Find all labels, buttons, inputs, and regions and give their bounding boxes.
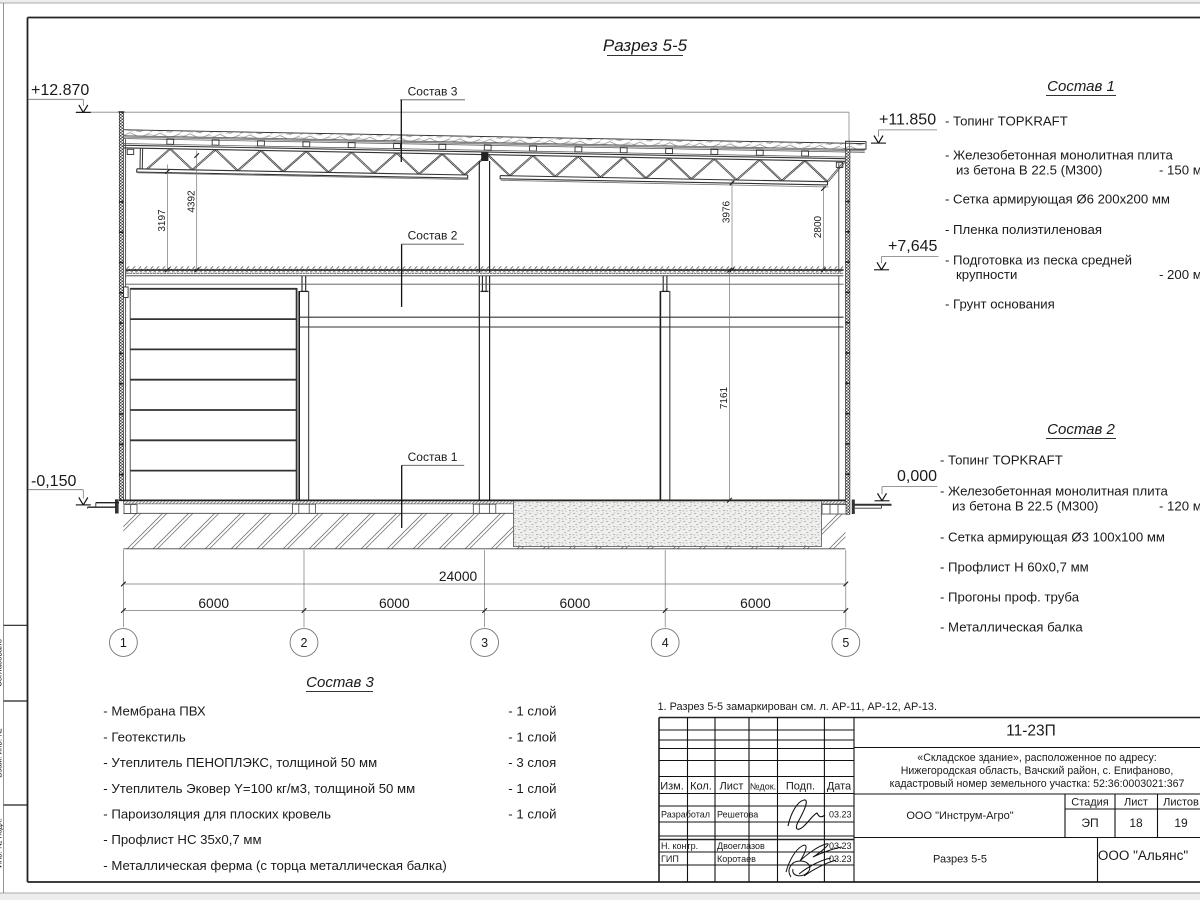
svg-text:Двоеглазов: Двоеглазов [717, 841, 765, 851]
svg-text:18: 18 [1129, 816, 1143, 830]
svg-text:11-23П: 11-23П [1006, 723, 1056, 740]
svg-text:0,000: 0,000 [897, 468, 937, 485]
svg-text:03.23: 03.23 [829, 854, 852, 864]
svg-text:6000: 6000 [740, 596, 771, 611]
svg-text:Подп.: Подп. [786, 781, 815, 793]
svg-text:Решетова: Решетова [717, 810, 758, 820]
svg-text:- Сетка армирующая Ø6 200х200: - Сетка армирующая Ø6 200х200 мм [945, 192, 1170, 207]
svg-text:из бетона В 22.5 (М300): из бетона В 22.5 (М300) [952, 499, 1098, 514]
svg-text:ГИП: ГИП [661, 854, 679, 864]
svg-text:4: 4 [662, 636, 669, 650]
svg-text:Лист: Лист [720, 781, 744, 793]
svg-text:- Сетка армирующая Ø3 100х100: - Сетка армирующая Ø3 100х100 мм [940, 530, 1165, 545]
svg-text:- Металлическая ферма (с торца: - Металлическая ферма (с торца металличе… [103, 858, 446, 873]
svg-text:Кол.: Кол. [690, 781, 712, 793]
svg-text:- Пароизоляция для плоских кро: - Пароизоляция для плоских кровель [103, 807, 331, 822]
svg-text:Стадия: Стадия [1071, 797, 1109, 809]
svg-text:- Подготовка из песка средней: - Подготовка из песка средней [945, 253, 1132, 268]
svg-text:6000: 6000 [379, 596, 410, 611]
svg-text:- Геотекстиль: - Геотекстиль [103, 730, 186, 745]
svg-text:6000: 6000 [560, 596, 591, 611]
svg-text:- Прогоны проф. труба: - Прогоны проф. труба [940, 590, 1080, 605]
svg-text:2: 2 [301, 636, 308, 650]
svg-text:- Грунт основания: - Грунт основания [945, 297, 1055, 312]
svg-text:1. Разрез 5-5 замаркирован см.: 1. Разрез 5-5 замаркирован см. л. АР-11,… [658, 701, 938, 713]
svg-text:- Топинг TOPKRAFT: - Топинг TOPKRAFT [945, 114, 1068, 129]
svg-text:- Топинг TOPKRAFT: - Топинг TOPKRAFT [940, 453, 1063, 468]
svg-text:Состав 2: Состав 2 [1047, 421, 1115, 438]
svg-text:5: 5 [842, 636, 849, 650]
svg-text:4392: 4392 [186, 190, 197, 213]
svg-text:ООО "Инструм-Агро": ООО "Инструм-Агро" [906, 810, 1013, 822]
svg-text:- Профлист НС 35х0,7 мм: - Профлист НС 35х0,7 мм [103, 832, 261, 847]
svg-text:- Утеплитель ПЕНОПЛЭКС, толщин: - Утеплитель ПЕНОПЛЭКС, толщиной 50 мм [103, 755, 377, 770]
svg-text:Взам. инв. №: Взам. инв. № [0, 728, 4, 778]
svg-text:1: 1 [120, 636, 127, 650]
svg-text:Лист: Лист [1124, 797, 1148, 809]
svg-text:- 120 мм: - 120 мм [1159, 499, 1200, 514]
svg-text:ЭП: ЭП [1081, 816, 1098, 830]
svg-text:ООО "Альянс": ООО "Альянс" [1098, 848, 1188, 863]
svg-text:Н. контр.: Н. контр. [661, 841, 698, 851]
svg-text:3197: 3197 [157, 209, 168, 232]
svg-text:- 3 слоя: - 3 слоя [508, 755, 556, 770]
svg-text:2800: 2800 [813, 215, 824, 238]
svg-text:Разработал: Разработал [661, 810, 710, 820]
svg-text:Состав 3: Состав 3 [408, 85, 458, 99]
svg-text:- 1 слой: - 1 слой [508, 807, 556, 822]
svg-text:7161: 7161 [719, 386, 730, 409]
svg-text:- Металлическая балка: - Металлическая балка [940, 620, 1083, 635]
svg-text:- 200 мм: - 200 мм [1159, 267, 1200, 282]
svg-text:Изм.: Изм. [660, 781, 684, 793]
svg-text:Состав 1: Состав 1 [408, 450, 458, 464]
svg-text:Дата: Дата [827, 781, 852, 793]
svg-text:Коротаев: Коротаев [717, 854, 756, 864]
svg-text:кадастровый номер земельного у: кадастровый номер земельного участка: 52… [890, 778, 1185, 790]
svg-text:+12.870: +12.870 [31, 82, 89, 99]
svg-text:- Мембрана ПВХ: - Мембрана ПВХ [103, 704, 206, 719]
svg-text:- Утеплитель Эковер Y=100 кг/м: - Утеплитель Эковер Y=100 кг/м3, толщино… [103, 781, 415, 796]
svg-text:3976: 3976 [722, 200, 733, 223]
svg-text:крупности: крупности [956, 267, 1017, 282]
svg-text:19: 19 [1174, 816, 1188, 830]
svg-text:- 1 слой: - 1 слой [508, 704, 556, 719]
svg-text:3: 3 [481, 636, 488, 650]
svg-text:«Складское здание», расположен: «Складское здание», расположенное по адр… [917, 752, 1156, 764]
svg-text:24000: 24000 [439, 569, 478, 584]
svg-text:Состав 1: Состав 1 [1047, 78, 1115, 95]
svg-text:Согласовано: Согласовано [0, 638, 4, 687]
svg-text:Состав 2: Состав 2 [408, 229, 458, 243]
svg-text:- Железобетонная монолитная п: - Железобетонная монолитная плита [940, 484, 1169, 499]
svg-text:Разрез 5-5: Разрез 5-5 [933, 854, 987, 866]
svg-text:- 1 слой: - 1 слой [508, 730, 556, 745]
svg-text:6000: 6000 [198, 596, 229, 611]
svg-text:Инв. № подл.: Инв. № подл. [0, 818, 4, 868]
svg-text:№док.: №док. [750, 782, 776, 792]
svg-text:- Пленка полиэтиленовая: - Пленка полиэтиленовая [945, 222, 1102, 237]
svg-text:03.23: 03.23 [829, 810, 852, 820]
svg-text:Состав 3: Состав 3 [306, 674, 374, 691]
svg-text:Разрез 5-5: Разрез 5-5 [603, 36, 688, 55]
svg-text:-0,150: -0,150 [31, 473, 76, 490]
svg-text:- 150 мм: - 150 мм [1159, 163, 1200, 178]
svg-text:- 1 слой: - 1 слой [508, 781, 556, 796]
svg-text:Листов: Листов [1163, 797, 1199, 809]
svg-text:- Профлист Н 60х0,7 мм: - Профлист Н 60х0,7 мм [940, 560, 1089, 575]
svg-text:Нижегородская область, Вачский: Нижегородская область, Вачский район, с.… [901, 765, 1174, 777]
svg-text:+11.850: +11.850 [879, 112, 936, 129]
svg-text:из бетона В 22.5 (М300): из бетона В 22.5 (М300) [956, 163, 1102, 178]
svg-text:+7,645: +7,645 [888, 238, 937, 255]
svg-text:- Железобетонная монолитная п: - Железобетонная монолитная плита [945, 148, 1174, 163]
